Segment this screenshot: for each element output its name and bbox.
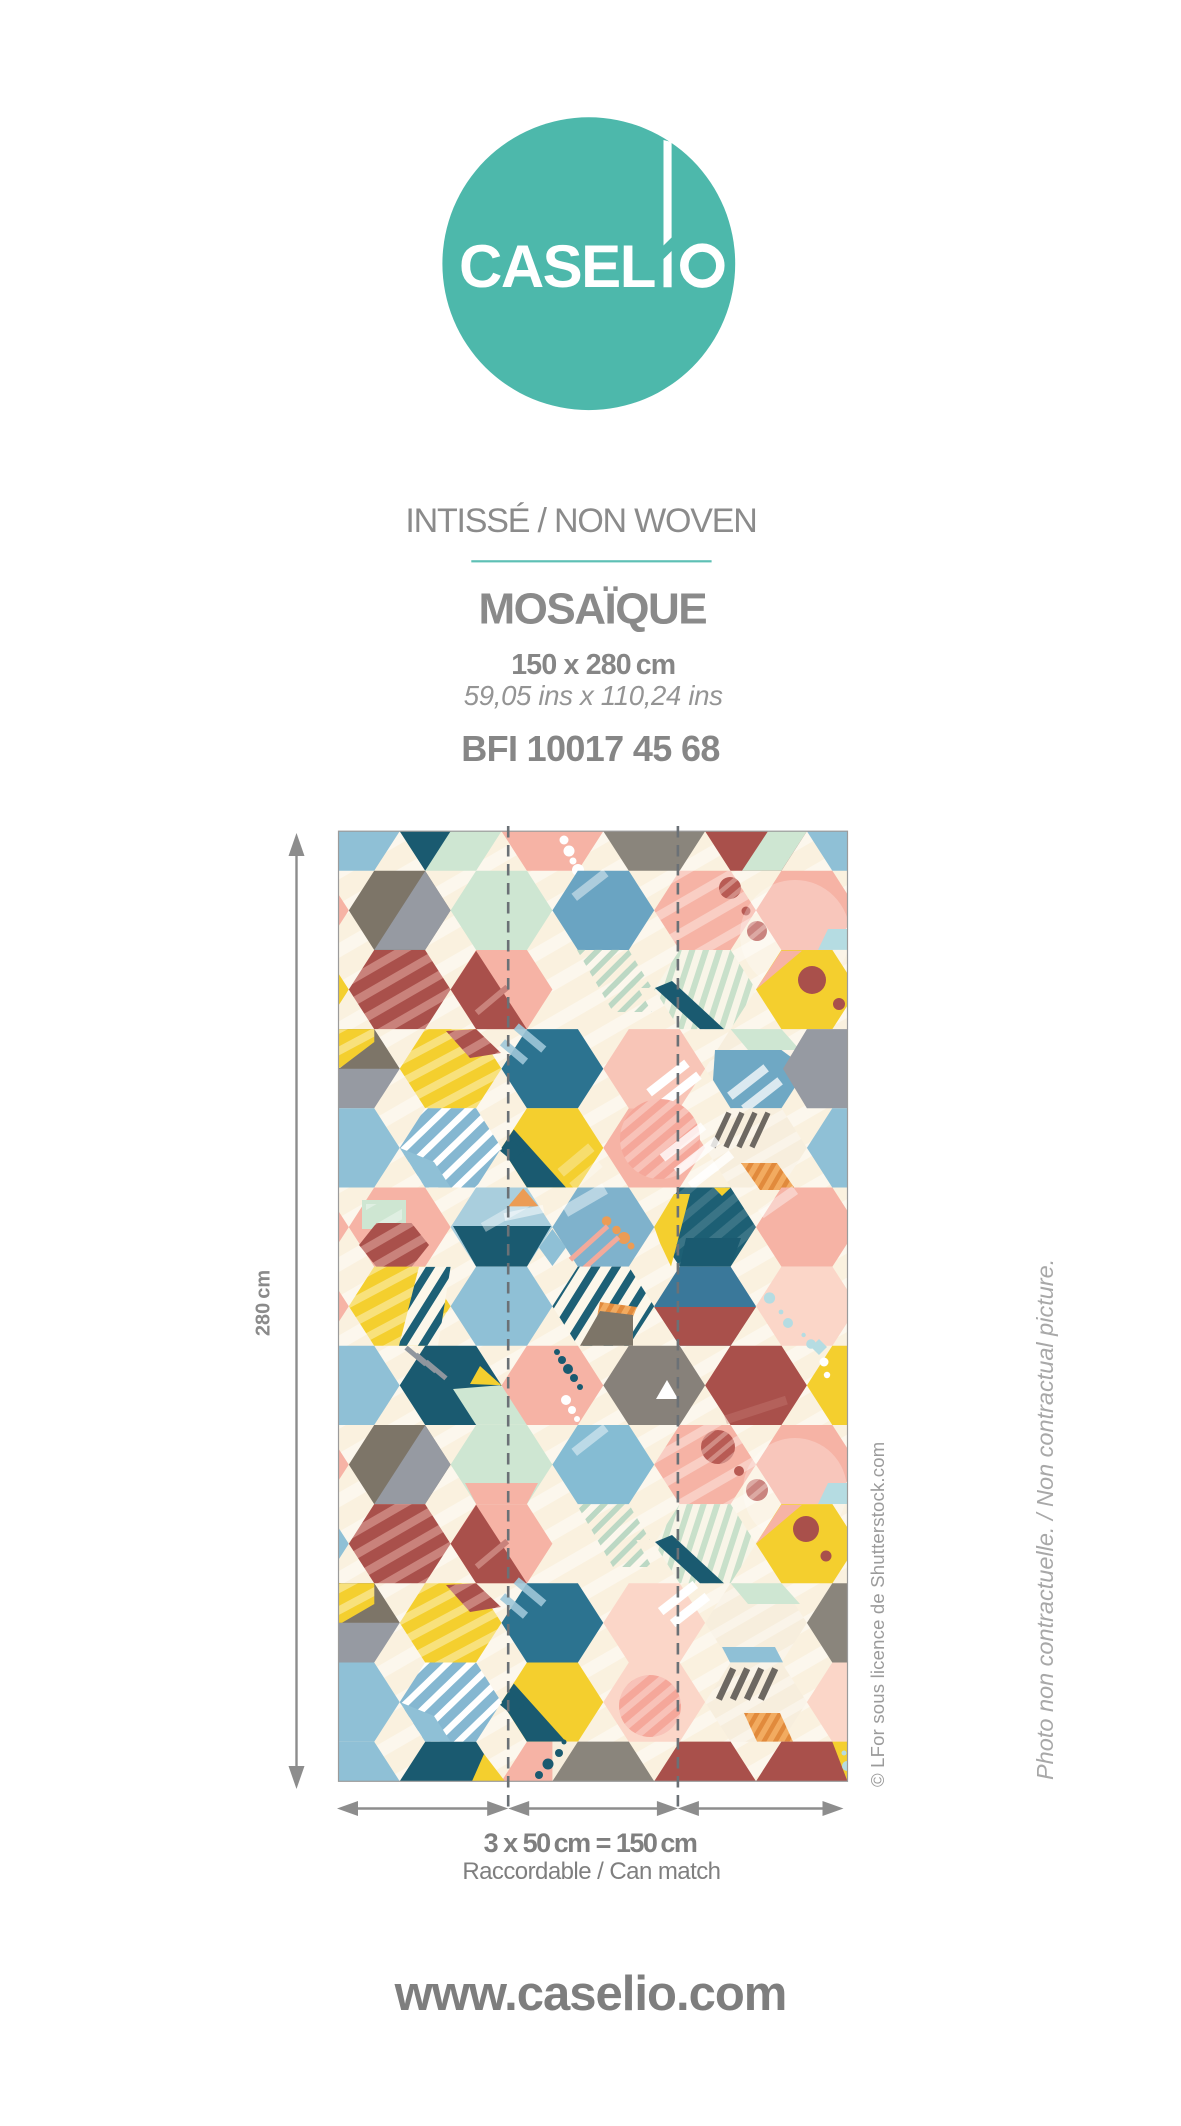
svg-text:Raccordable / Can match: Raccordable / Can match [462,1858,720,1885]
svg-text:150 x 280 cm: 150 x 280 cm [511,649,675,681]
svg-text:CASEL: CASEL [459,233,655,300]
svg-text:3 x 50 cm = 150 cm: 3 x 50 cm = 150 cm [484,1828,697,1858]
svg-text:280 cm: 280 cm [253,1270,275,1336]
svg-text:BFI 10017 45 68: BFI 10017 45 68 [461,728,719,769]
svg-text:www.caselio.com: www.caselio.com [394,1967,787,2021]
svg-text:Photo non contractuelle. / Non: Photo non contractuelle. / Non contractu… [1032,1259,1058,1780]
svg-text:© LFor sous licence de Shutter: © LFor sous licence de Shutterstock.com [867,1442,888,1787]
svg-text:59,05 ins x 110,24 ins: 59,05 ins x 110,24 ins [464,680,723,711]
svg-text:INTISSÉ / NON WOVEN: INTISSÉ / NON WOVEN [405,502,756,540]
svg-text:MOSAÏQUE: MOSAÏQUE [479,585,707,634]
